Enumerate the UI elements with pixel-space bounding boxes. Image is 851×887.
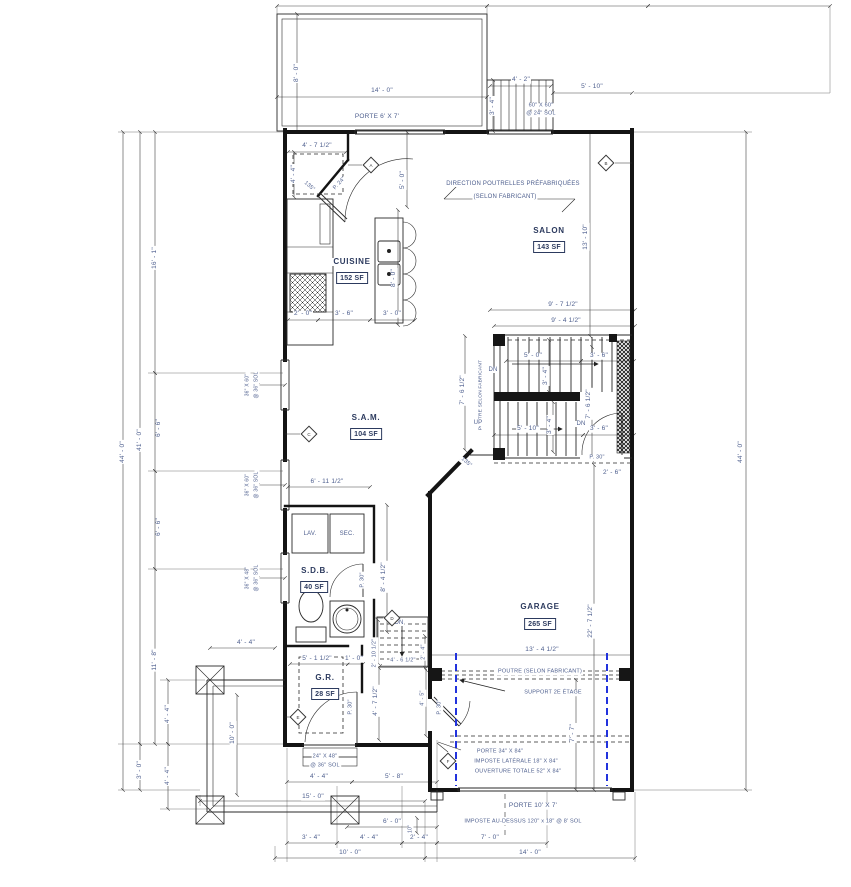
blue-support-lines [456, 653, 607, 786]
entry-door-swing [345, 159, 413, 222]
toilet [299, 590, 323, 622]
stove [290, 274, 326, 312]
extension-lines [118, 6, 830, 862]
main-stairs [493, 334, 632, 463]
island [375, 218, 403, 323]
washer [292, 514, 328, 553]
dryer [330, 514, 364, 553]
marker-leaders [285, 163, 632, 752]
footing [613, 792, 625, 800]
front-step [303, 748, 357, 757]
garage-elements [429, 653, 632, 800]
gr-shelf [299, 657, 343, 733]
entry-door-leaf [318, 193, 347, 222]
front-door-swing [305, 692, 357, 742]
stair-landing [494, 392, 580, 401]
hall-garage-door-swing [459, 701, 470, 726]
bathroom-fixtures [292, 514, 364, 642]
closet-and-front-door [299, 657, 357, 766]
joist-direction-arrow [444, 186, 575, 212]
deck [277, 14, 553, 131]
annotation-graphics [285, 163, 632, 835]
floorplan-drawing [0, 0, 851, 887]
bath-door-swing [330, 564, 363, 597]
floor-plan-sheet: 8' - 0"14' - 0"PORTE 6' X 7'4' - 2"3' - … [0, 0, 851, 887]
stair-garage-door-swing [582, 413, 622, 455]
interior-walls [285, 132, 494, 692]
kitchen-fixtures [287, 154, 416, 345]
insulation-hatch [617, 341, 630, 453]
support-leader [460, 680, 505, 691]
garage-beam [434, 671, 630, 679]
